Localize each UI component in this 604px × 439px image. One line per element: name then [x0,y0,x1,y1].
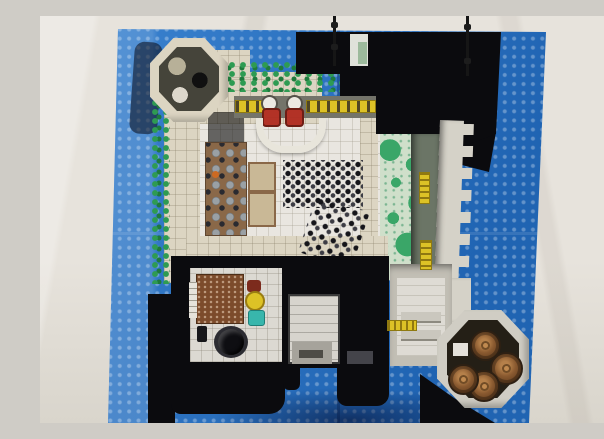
flagpole-connector [331,44,338,50]
side-bench-lower [248,192,276,227]
service-room-wood-floor [196,274,244,324]
southeast-room-bench [401,330,441,341]
hedge-west [152,100,170,284]
feast-bench-right [306,100,376,113]
yellow-ladder-lower [420,240,432,270]
flagpole-connector [331,22,338,28]
roof-opening-interior [358,42,367,64]
white-block [453,343,468,356]
flagpole-connector [464,58,471,64]
tower-interior [159,47,219,111]
flagpole-right [466,16,469,76]
banquet-table [205,142,247,236]
castle-shadow-bottom-center [337,362,389,406]
yellow-ladder-horizontal [387,320,417,331]
barrel [448,364,479,395]
white-ladder [189,282,197,318]
gray-hatch-plate [347,351,373,364]
lego-castle-photo [40,16,604,423]
flagpole-left [333,16,336,66]
castle-shadow-bottom-left [171,362,285,414]
side-bench-upper [248,162,276,192]
orange-food-piece [212,171,219,178]
flagpole-connector [464,24,471,30]
black-cauldron [218,329,244,355]
yellow-ladder-upper [419,172,430,204]
teal-chest [248,310,265,326]
gatehouse-slot [299,350,323,358]
fireplace-hook [197,326,207,342]
round-yellow-table [245,291,265,311]
